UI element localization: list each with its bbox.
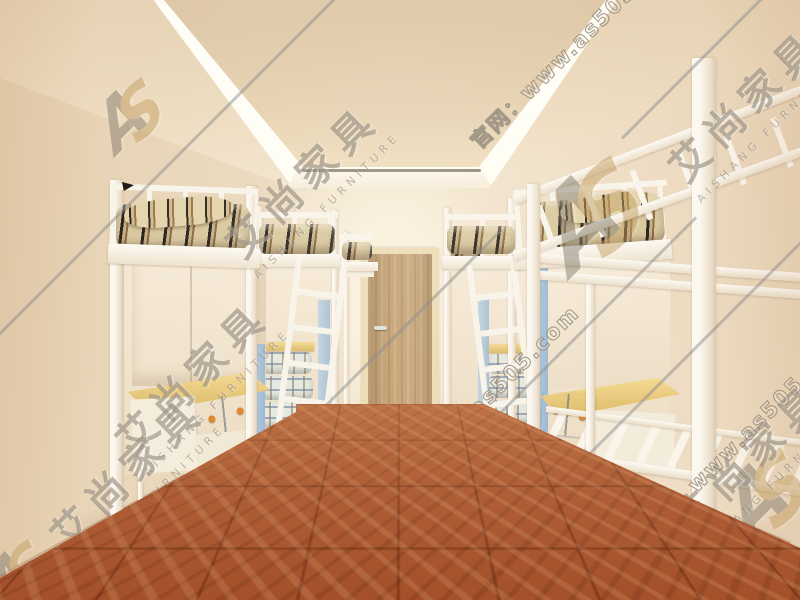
dorm-room-render: AS AS AS AS 艾尚家具AISHANG FURNITURE 艾尚家具AI… xyxy=(0,0,800,600)
ceiling-light-slot xyxy=(301,169,481,172)
striped-bedding xyxy=(447,226,515,254)
frame-post xyxy=(692,58,716,558)
striped-bedding xyxy=(259,224,335,254)
frame-post xyxy=(586,275,595,575)
door-handle xyxy=(374,326,387,330)
drawer-knob xyxy=(208,415,216,423)
frame-post xyxy=(527,184,540,600)
desk-leg xyxy=(138,470,143,516)
desk-leg xyxy=(258,440,263,488)
wardrobe-cabinet xyxy=(132,264,252,386)
drawer-knob xyxy=(236,407,244,415)
desk-side-panel xyxy=(130,396,198,473)
striped-bedding xyxy=(342,242,372,260)
